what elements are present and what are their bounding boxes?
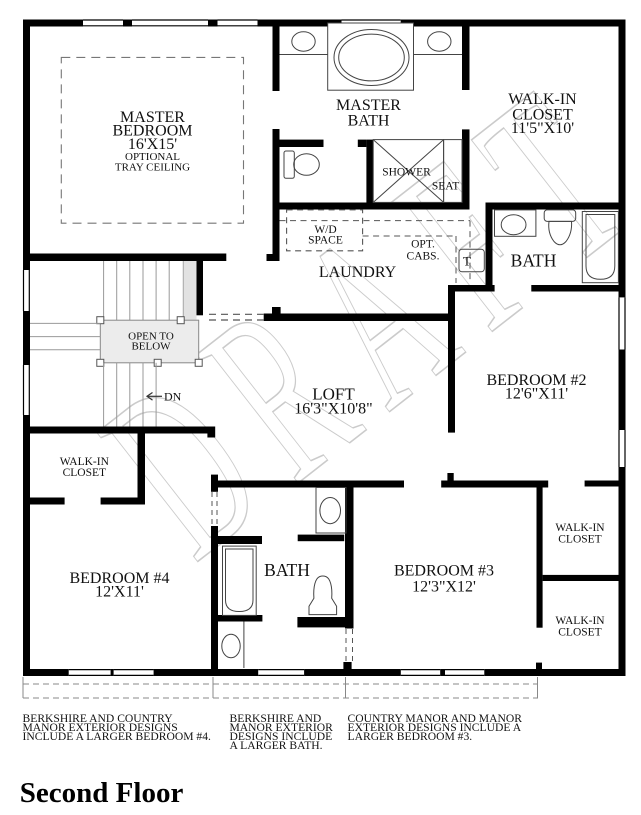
svg-text:11'5"X10': 11'5"X10': [511, 120, 574, 137]
svg-text:CABS.: CABS.: [407, 251, 440, 263]
svg-text:CLOSET: CLOSET: [63, 467, 106, 479]
svg-text:CLOSET: CLOSET: [558, 534, 601, 546]
svg-text:BEDROOM #3: BEDROOM #3: [394, 563, 494, 580]
svg-text:12'3"X12': 12'3"X12': [412, 579, 476, 596]
svg-text:WALK-IN: WALK-IN: [555, 615, 605, 627]
svg-text:T: T: [463, 254, 471, 269]
svg-text:DN: DN: [164, 390, 182, 404]
svg-text:WALK-IN: WALK-IN: [508, 91, 577, 108]
svg-text:MASTER: MASTER: [336, 97, 401, 114]
svg-text:TRAY CEILING: TRAY CEILING: [115, 162, 190, 174]
svg-text:WALK-IN: WALK-IN: [555, 522, 605, 534]
svg-text:BATH: BATH: [348, 113, 390, 130]
svg-text:12'6"X11': 12'6"X11': [505, 386, 568, 403]
svg-text:SEAT: SEAT: [432, 181, 459, 193]
svg-text:A LARGER BATH.: A LARGER BATH.: [230, 739, 323, 752]
svg-text:INCLUDE A LARGER BEDROOM #4.: INCLUDE A LARGER BEDROOM #4.: [23, 730, 212, 743]
svg-text:LARGER BEDROOM #3.: LARGER BEDROOM #3.: [348, 730, 473, 743]
svg-text:Second Floor: Second Floor: [20, 777, 184, 809]
svg-text:12'X11': 12'X11': [95, 584, 144, 601]
svg-text:BATH: BATH: [511, 251, 557, 271]
svg-text:CLOSET: CLOSET: [558, 627, 601, 639]
svg-text:SPACE: SPACE: [308, 235, 343, 247]
svg-text:BATH: BATH: [264, 560, 310, 580]
svg-text:BELOW: BELOW: [131, 341, 171, 353]
svg-text:SHOWER: SHOWER: [382, 167, 431, 179]
svg-text:LAUNDRY: LAUNDRY: [319, 264, 397, 281]
svg-text:16'3"X10'8": 16'3"X10'8": [294, 401, 372, 418]
svg-text:OPT.: OPT.: [411, 239, 435, 251]
